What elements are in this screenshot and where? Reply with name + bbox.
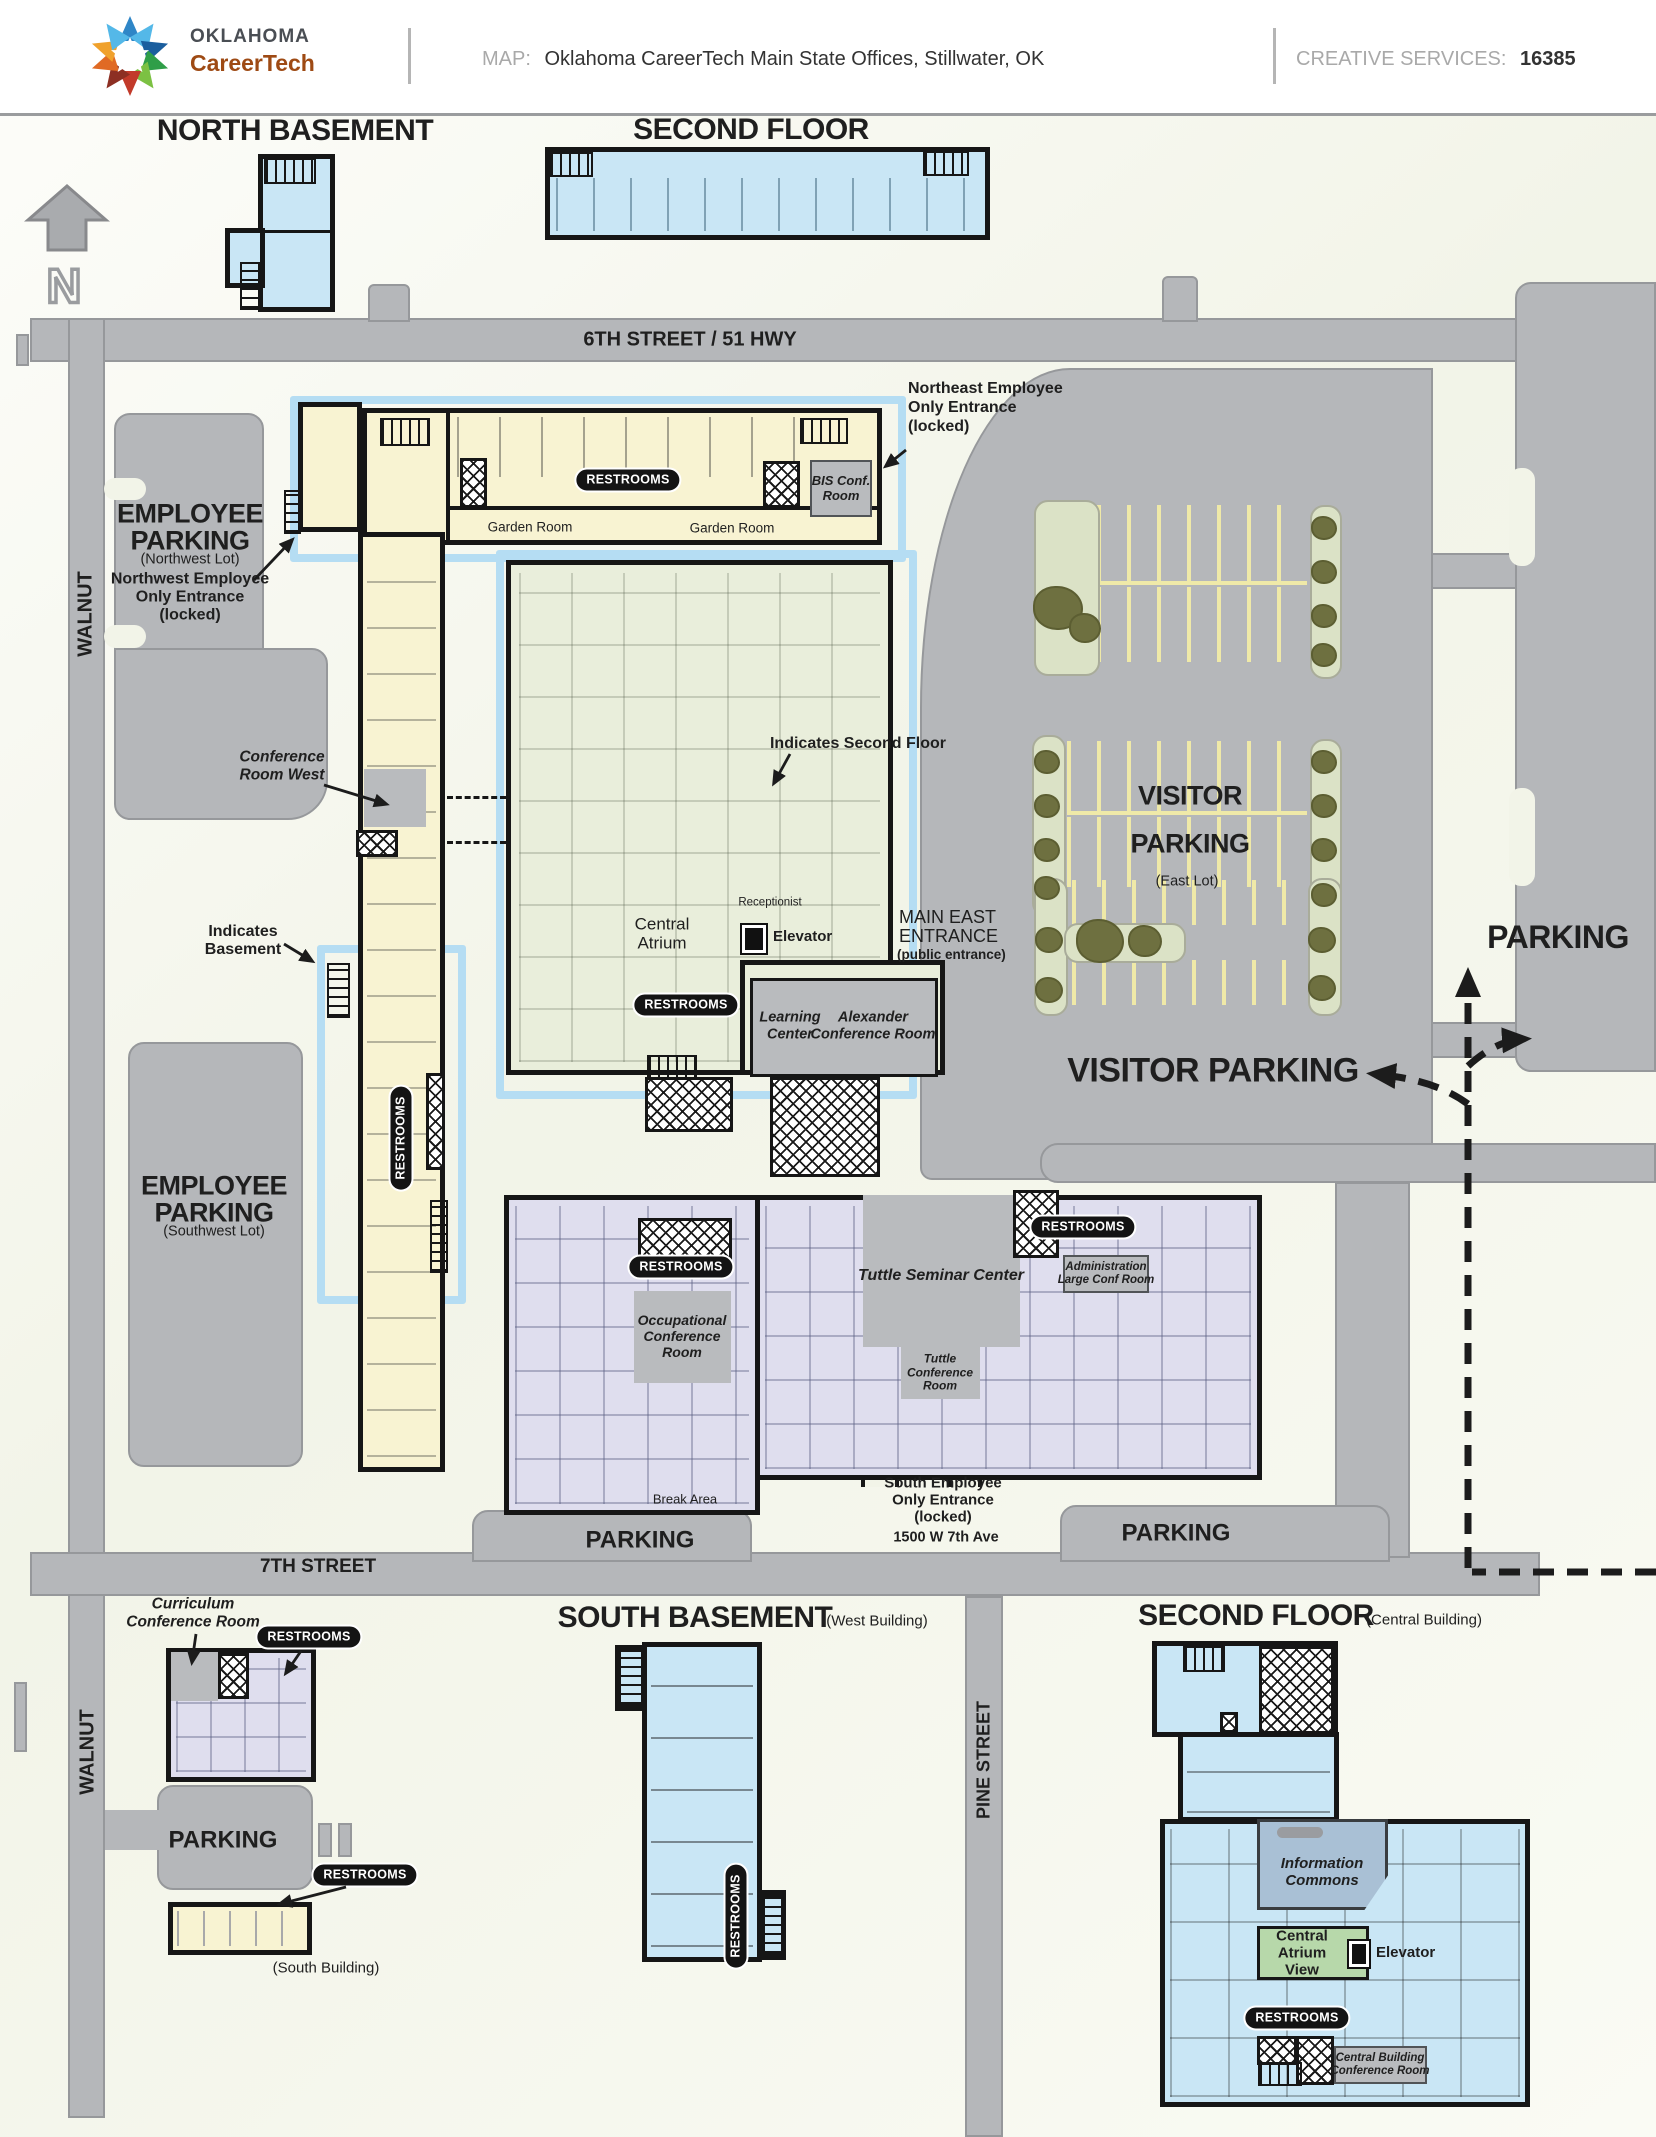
central-atrium-label: Central Atrium: [635, 915, 690, 954]
map-page: OKLAHOMA CareerTech MAP: Oklahoma Career…: [0, 0, 1656, 2137]
restrooms-badge: RESTROOMS: [311, 1863, 418, 1888]
tree-icon: [1311, 838, 1337, 862]
restrooms-badge: RESTROOMS: [632, 993, 739, 1018]
hatched-area: [1257, 2036, 1297, 2065]
central-building-conference-room-label: Central Building Conference Room: [1330, 2052, 1429, 2078]
room-partitions: [556, 178, 979, 231]
creative-services-row: CREATIVE SERVICES: 16385: [1296, 48, 1576, 71]
nw-entrance-note: Northwest Employee Only Entrance (locked…: [111, 571, 269, 626]
tree-icon: [1076, 919, 1124, 963]
central-atrium-view-label: Central Atrium View: [1276, 1927, 1328, 1978]
stairs-icon: [800, 418, 848, 444]
lane-crossing-1: [1433, 553, 1517, 589]
map-label: MAP:: [482, 48, 531, 70]
stairs-icon: [549, 152, 593, 177]
restrooms-badge: RESTROOMS: [724, 1862, 749, 1969]
parking-south-bar-2: [338, 1823, 352, 1857]
east-lot-notch-2: [1509, 788, 1535, 886]
header: OKLAHOMA CareerTech MAP: Oklahoma Career…: [0, 0, 1656, 116]
conference-room-west-note: Conference Room West: [239, 748, 324, 783]
map-title: Oklahoma CareerTech Main State Offices, …: [544, 48, 1044, 70]
receptionist-label: Receptionist: [738, 896, 801, 909]
administration-large-conf-room-label: Administration Large Conf Room: [1058, 1261, 1154, 1287]
south-small-building: [168, 1902, 312, 1955]
stairs-icon: [763, 1895, 783, 1955]
information-commons-label: Information Commons: [1281, 1855, 1364, 1889]
hatched-area: [426, 1073, 445, 1170]
tree-icon: [1035, 927, 1063, 953]
indicates-second-floor-note: Indicates Second Floor: [770, 735, 946, 753]
tree-icon: [1311, 643, 1337, 667]
main-east-entrance-label: MAIN EAST ENTRANCE: [899, 908, 998, 946]
creative-services-label: CREATIVE SERVICES:: [1296, 48, 1506, 70]
parking-south-bar-1: [318, 1823, 332, 1857]
room-partitions: [1187, 1741, 1330, 1813]
stairs-icon: [380, 418, 430, 446]
employee-parking-sw-sub: (Southwest Lot): [163, 1224, 265, 1241]
hatched-area: [645, 1077, 733, 1132]
bis-conference-room-label: BIS Conf. Room: [812, 474, 871, 504]
parking-7th-right-label: PARKING: [1122, 1519, 1231, 1546]
stairs-icon: [1258, 2062, 1302, 2086]
creative-services-number: 16385: [1520, 48, 1576, 70]
alexander-conference-room-label: Alexander Conference Room: [811, 1009, 936, 1042]
west-wing-building: [358, 532, 445, 1472]
lane-crossing-2: [1433, 1022, 1517, 1058]
second-floor-central-title-sub: (Central Building): [1366, 1611, 1482, 1628]
elevator-label-2: Elevator: [1376, 1944, 1435, 1962]
parking-centerline-row2: [1067, 811, 1307, 815]
east-lot-notch-1: [1509, 468, 1535, 566]
room-partitions: [177, 1911, 303, 1946]
restrooms-badge: RESTROOMS: [1243, 2006, 1350, 2031]
tree-icon: [1311, 794, 1337, 818]
garden-room-label-west: Garden Room: [488, 519, 573, 534]
elevator-label: Elevator: [773, 928, 832, 946]
road-6th-driveway-left: [368, 284, 410, 322]
main-east-entrance-sub-label: (public entrance): [897, 947, 1006, 963]
walnut-street-label-south: WALNUT: [77, 1709, 100, 1795]
tree-icon: [1034, 876, 1060, 900]
tuttle-seminar-center-label: Tuttle Seminar Center: [858, 1267, 1024, 1285]
header-divider-1: [408, 28, 411, 84]
corridor-connector: [447, 796, 506, 799]
parking-south-label: PARKING: [169, 1826, 278, 1853]
pine-street-label: PINE STREET: [974, 1701, 995, 1819]
south-basement-title-sub: (West Building): [826, 1612, 927, 1629]
tree-icon: [1308, 975, 1336, 1001]
parking-east-label: PARKING: [1487, 919, 1629, 955]
compass-north-arrow-icon: [22, 182, 112, 257]
sixth-street-label: 6TH STREET / 51 HWY: [583, 329, 796, 352]
employee-parking-nw-sub: (Northwest Lot): [140, 552, 239, 569]
south-building-sub-label: (South Building): [273, 1959, 380, 1976]
tree-icon: [1311, 750, 1337, 774]
employee-parking-nw-lot-lower: [114, 648, 328, 820]
wall: [446, 408, 450, 545]
tree-icon: [1034, 750, 1060, 774]
stairs-icon: [264, 158, 316, 184]
south-basement-title: SOUTH BASEMENT: [558, 1601, 833, 1635]
map-title-row: MAP: Oklahoma CareerTech Main State Offi…: [482, 48, 1044, 71]
south-employee-entrance-note: South Employee Only Entrance (locked): [884, 1474, 1002, 1525]
tree-icon: [1311, 883, 1337, 907]
wall: [262, 230, 332, 233]
stairs-icon: [240, 262, 260, 310]
tree-icon: [1035, 977, 1063, 1003]
elevator-icon: [1347, 1939, 1371, 1969]
visitor-parking-east-label-2: PARKING: [1130, 829, 1249, 860]
hatched-area: [218, 1653, 249, 1699]
employee-parking-sw-lot: [128, 1042, 303, 1467]
road-6th-driveway-right: [1162, 276, 1198, 322]
indicates-basement-note: Indicates Basement: [205, 923, 281, 959]
restrooms-badge: RESTROOMS: [389, 1084, 414, 1191]
information-commons-table: [1277, 1827, 1323, 1838]
northwest-stair-block: [298, 402, 362, 532]
curriculum-conference-room: [171, 1652, 218, 1701]
tree-icon: [1308, 927, 1336, 953]
stairs-icon: [1183, 1646, 1225, 1672]
visitor-parking-route-label: VISITOR PARKING: [1067, 1052, 1359, 1091]
indicates-basement-arrow: [284, 944, 312, 961]
garden-room-label-east: Garden Room: [690, 520, 775, 535]
tree-icon: [1311, 604, 1337, 628]
seventh-street-label: 7TH STREET: [260, 1556, 376, 1578]
logo-text-line2: CareerTech: [190, 50, 315, 77]
restrooms-badge: RESTROOMS: [255, 1625, 362, 1650]
parking-ticks-row1-upper: [1067, 505, 1307, 583]
elevator-icon: [740, 923, 768, 955]
hatched-area: [763, 461, 800, 508]
stairs-icon: [284, 490, 301, 534]
walnut-street-label-north: WALNUT: [75, 571, 98, 657]
second-floor-central-block-b: [1178, 1732, 1339, 1822]
stairs-icon: [923, 151, 969, 176]
tree-icon: [1034, 794, 1060, 818]
corridor-connector: [447, 841, 506, 844]
tree-icon: [1128, 925, 1162, 957]
stairs-icon: [327, 963, 350, 1018]
parking-ticks-row3-lower: [1072, 960, 1304, 1005]
restrooms-badge: RESTROOMS: [627, 1255, 734, 1280]
road-pine-street: [965, 1596, 1003, 2137]
tree-icon: [1069, 613, 1101, 643]
restrooms-badge: RESTROOMS: [574, 468, 681, 493]
conference-room-west-room: [364, 769, 426, 827]
visitor-parking-east-label-1: VISITOR: [1138, 781, 1242, 812]
tree-icon: [1311, 516, 1337, 540]
compass-north-label: N: [47, 261, 82, 316]
walnut-median-north: [16, 334, 29, 366]
parking-south-lot-stub: [105, 1810, 160, 1850]
stairs-icon: [619, 1650, 643, 1706]
tree-icon: [1034, 838, 1060, 862]
address-label: 1500 W 7th Ave: [893, 1530, 998, 1547]
hatched-area: [460, 458, 487, 508]
road-east-access: [1335, 1182, 1410, 1558]
ne-entrance-note: Northeast Employee Only Entrance (locked…: [908, 380, 1063, 437]
curriculum-conference-room-label: Curriculum Conference Room: [126, 1595, 260, 1630]
visitor-parking-east-sub: (East Lot): [1156, 874, 1219, 891]
tuttle-conference-room-label: Tuttle Conference Room: [907, 1352, 973, 1393]
stairs-icon: [430, 1200, 448, 1273]
restrooms-badge: RESTROOMS: [1029, 1215, 1136, 1240]
hatched-area: [770, 1077, 880, 1177]
hatched-area: [1259, 1646, 1334, 1734]
tree-icon: [1311, 560, 1337, 584]
occupational-conference-room-label: Occupational Conference Room: [638, 1313, 727, 1361]
parking-7th-left-label: PARKING: [586, 1526, 695, 1553]
parking-centerline-row1: [1067, 581, 1307, 585]
careertech-logo-icon: [88, 6, 172, 106]
break-area-label: Break Area: [653, 1493, 717, 1508]
hatched-area: [356, 830, 398, 857]
second-floor-title: SECOND FLOOR: [633, 113, 869, 147]
second-floor-central-title: SECOND FLOOR: [1138, 1599, 1374, 1633]
header-divider-2: [1273, 28, 1276, 84]
nw-lot-notch-1: [104, 478, 146, 500]
logo-text-line1: OKLAHOMA: [190, 26, 310, 48]
room-partitions: [367, 547, 436, 1457]
walnut-median-south: [14, 1682, 27, 1752]
hatched-area: [1220, 1712, 1238, 1733]
nw-lot-notch-2: [104, 625, 146, 648]
parking-ticks-row1-lower: [1067, 587, 1307, 662]
parking-south-band: [1040, 1143, 1656, 1183]
north-basement-title: NORTH BASEMENT: [157, 114, 433, 148]
